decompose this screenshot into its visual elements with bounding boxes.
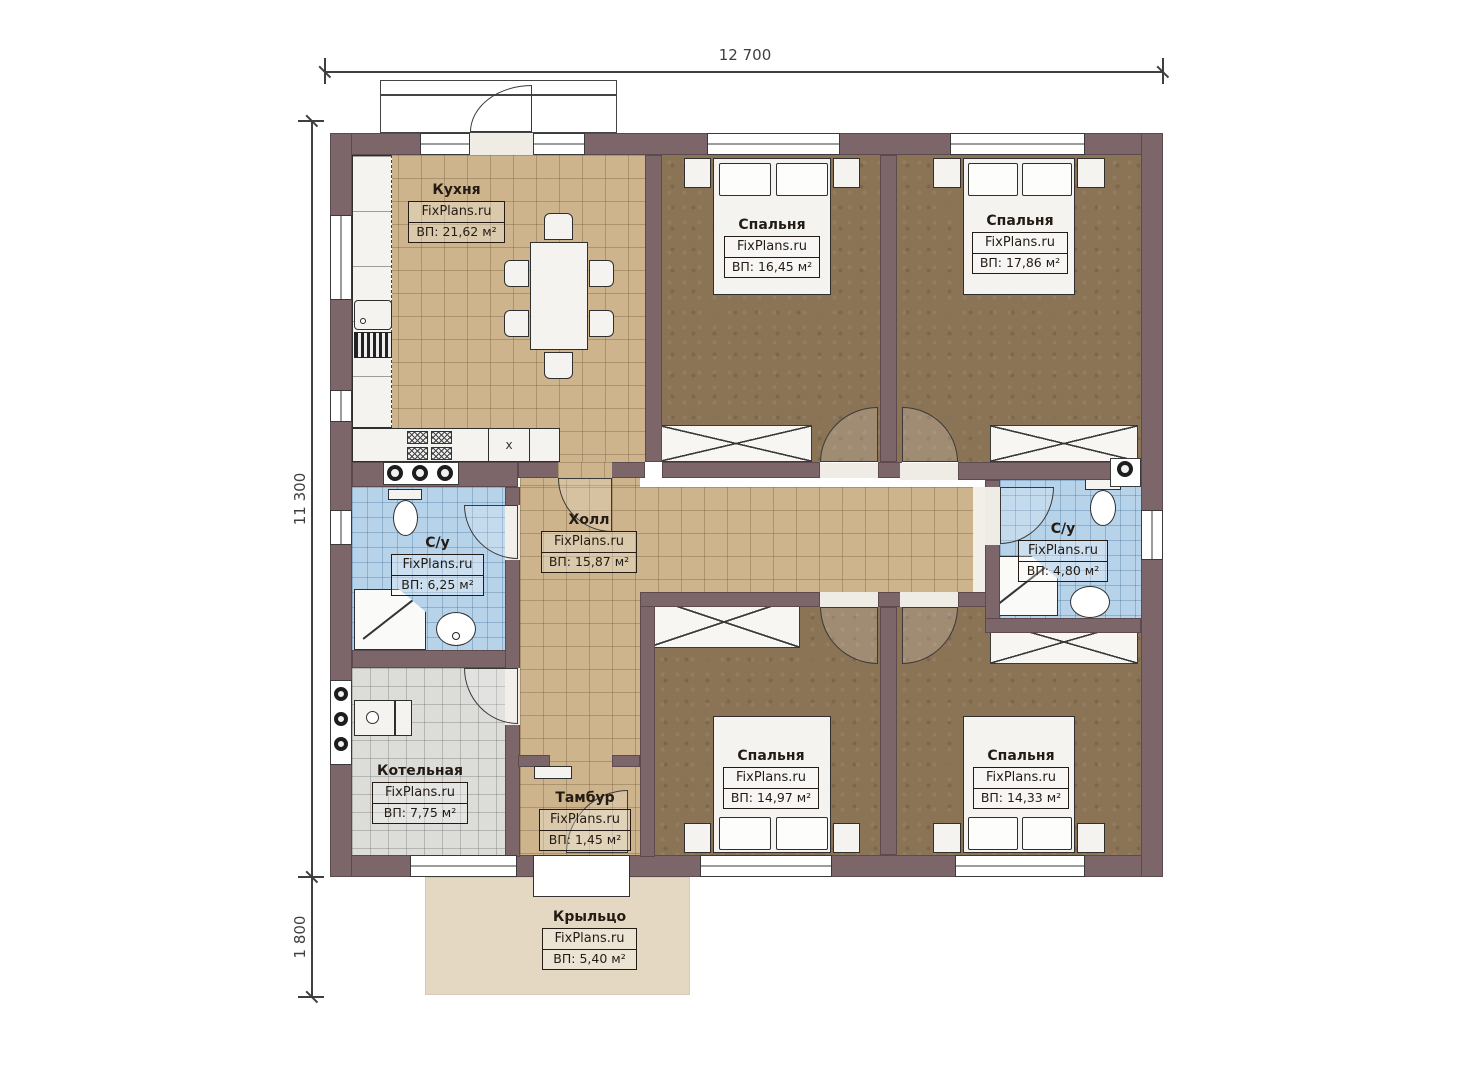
wall-right: [1141, 133, 1163, 877]
bedroom1-label: Спальня FixPlans.ru ВП: 16,45 м²: [724, 218, 820, 278]
dining-table: [530, 242, 588, 350]
wall-hall-bedroom3-top: [640, 592, 820, 607]
room-info-box: FixPlans.ru ВП: 1,45 м²: [539, 809, 631, 850]
kitchen-label: Кухня FixPlans.ru ВП: 21,62 м²: [408, 183, 505, 243]
watermark-text: FixPlans.ru: [409, 202, 504, 223]
room-area: ВП: 17,86 м²: [973, 254, 1067, 273]
room-name: С/у: [1018, 522, 1108, 537]
nightstand: [833, 823, 860, 853]
vestibule-door-leaf: [534, 766, 572, 779]
window-bedroom4: [955, 855, 1085, 877]
room-info-box: FixPlans.ru ВП: 14,33 м²: [973, 767, 1069, 808]
pillow: [776, 817, 828, 850]
doorway-bedroom2: [900, 463, 958, 480]
boiler-label: Котельная FixPlans.ru ВП: 7,75 м²: [372, 764, 468, 824]
window-bath2: [1141, 510, 1163, 560]
nightstand: [1077, 158, 1105, 188]
room-area: ВП: 14,33 м²: [974, 789, 1068, 808]
boiler-unit: [354, 700, 412, 736]
room-area: ВП: 6,25 м²: [392, 576, 483, 595]
vent-pipe-icon: [334, 737, 348, 751]
doorway-bedroom3: [820, 592, 878, 607]
room-name: Котельная: [372, 764, 468, 779]
dining-chair: [589, 260, 614, 287]
watermark-text: FixPlans.ru: [373, 783, 467, 804]
doorway-bath2: [985, 487, 1000, 545]
room-area: ВП: 21,62 м²: [409, 223, 504, 242]
kitchen-counter-left: [352, 155, 392, 428]
front-door-landing: [533, 855, 630, 897]
room-info-box: FixPlans.ru ВП: 7,75 м²: [372, 782, 468, 823]
room-info-box: FixPlans.ru ВП: 5,40 м²: [542, 928, 637, 969]
kitchen-sink-tap: [360, 318, 366, 324]
watermark-text: FixPlans.ru: [973, 233, 1067, 254]
room-area: ВП: 7,75 м²: [373, 804, 467, 823]
wall-vestibule-stub-right: [612, 755, 640, 767]
dining-chair: [589, 310, 614, 337]
wardrobe: [660, 425, 812, 462]
wall-bath1-boiler: [352, 650, 518, 668]
window-kitchen-top-1: [420, 133, 470, 155]
watermark-text: FixPlans.ru: [543, 929, 636, 950]
dimension-porch-label: 1 800: [291, 899, 309, 975]
bedroom3-label: Спальня FixPlans.ru ВП: 14,97 м²: [723, 749, 819, 809]
bedroom4-label: Спальня FixPlans.ru ВП: 14,33 м²: [973, 749, 1069, 809]
toilet-bowl-icon: [1090, 490, 1116, 526]
vent-pipe-icon: [334, 712, 348, 726]
room-name: Спальня: [972, 214, 1068, 229]
room-area: ВП: 16,45 м²: [725, 258, 819, 277]
pillow: [719, 163, 771, 196]
room-info-box: FixPlans.ru ВП: 14,97 м²: [723, 767, 819, 808]
nightstand: [1077, 823, 1105, 853]
kitchen-sink-icon: [354, 300, 392, 330]
dining-chair: [504, 260, 529, 287]
room-info-box: FixPlans.ru ВП: 17,86 м²: [972, 232, 1068, 273]
cooktop-ring-icon: [387, 465, 403, 481]
wall-bedroom1-bedroom2: [880, 155, 897, 462]
dimension-line-porch: [311, 877, 313, 997]
pillow: [776, 163, 828, 196]
room-name: Крыльцо: [542, 910, 637, 925]
room-info-box: FixPlans.ru ВП: 16,45 м²: [724, 236, 820, 277]
washbasin-icon: [1070, 586, 1110, 618]
bedroom2-label: Спальня FixPlans.ru ВП: 17,86 м²: [972, 214, 1068, 274]
pillow: [1022, 163, 1072, 196]
basin-drain: [452, 632, 460, 640]
cooktop-ring-icon: [412, 465, 428, 481]
window-bedroom1: [707, 133, 840, 155]
doorway-bedroom4: [900, 592, 958, 607]
window-kitchen-left-2: [330, 390, 352, 422]
washbasin-icon: [436, 612, 476, 646]
doorway-terrace: [470, 133, 533, 155]
watermark-text: FixPlans.ru: [540, 810, 630, 831]
dining-chair: [504, 310, 529, 337]
window-bath1: [330, 510, 352, 545]
window-boiler: [410, 855, 517, 877]
room-name: Спальня: [723, 749, 819, 764]
nightstand: [684, 823, 711, 853]
stove-burner-icon: [431, 447, 452, 460]
nightstand: [933, 823, 961, 853]
room-info-box: FixPlans.ru ВП: 6,25 м²: [391, 554, 484, 595]
stove-burner-icon: [431, 431, 452, 444]
wall-bath2-bottom: [985, 618, 1141, 633]
watermark-text: FixPlans.ru: [974, 768, 1068, 789]
toilet-tank-icon: [388, 489, 422, 500]
window-kitchen-left-1: [330, 215, 352, 300]
dimension-line-width: [325, 71, 1163, 73]
window-bedroom2: [950, 133, 1085, 155]
watermark-text: FixPlans.ru: [1019, 541, 1107, 562]
stove-burner-icon: [407, 447, 428, 460]
doorway-bedroom1: [820, 463, 878, 478]
wall-hall-bedroom3: [640, 592, 655, 857]
nightstand: [833, 158, 860, 188]
boiler-dial-icon: [366, 711, 379, 724]
watermark-text: FixPlans.ru: [392, 555, 483, 576]
window-kitchen-top-2: [533, 133, 585, 155]
dimension-height-label: 11 300: [291, 454, 309, 544]
watermark-text: FixPlans.ru: [542, 532, 636, 553]
nightstand: [684, 158, 711, 188]
room-name: Спальня: [973, 749, 1069, 764]
pillow: [719, 817, 771, 850]
floor-plan: x: [0, 0, 1473, 1080]
dish-rack-icon: [354, 332, 392, 358]
room-area: ВП: 4,80 м²: [1019, 562, 1107, 581]
stove-burner-icon: [407, 431, 428, 444]
pillow: [968, 817, 1018, 850]
porch-label: Крыльцо FixPlans.ru ВП: 5,40 м²: [542, 910, 637, 970]
hall-label: Холл FixPlans.ru ВП: 15,87 м²: [541, 513, 637, 573]
wall-hall-bedroom1: [662, 462, 820, 478]
boiler-flue-icon: [1117, 461, 1133, 477]
room-info-box: FixPlans.ru ВП: 4,80 м²: [1018, 540, 1108, 581]
room-name: Тамбур: [539, 791, 631, 806]
pillow: [968, 163, 1018, 196]
toilet-bowl-icon: [393, 500, 418, 536]
vent-pipe-icon: [334, 687, 348, 701]
bath1-label: С/у FixPlans.ru ВП: 6,25 м²: [391, 536, 484, 596]
dimension-width-label: 12 700: [700, 46, 790, 64]
room-area: ВП: 15,87 м²: [542, 553, 636, 572]
kitchen-extract-label: x: [505, 438, 512, 452]
doorway-kitchen-hall: [558, 462, 612, 478]
nightstand: [933, 158, 961, 188]
window-bedroom3: [700, 855, 832, 877]
room-area: ВП: 5,40 м²: [543, 950, 636, 969]
vestibule-label: Тамбур FixPlans.ru ВП: 1,45 м²: [539, 791, 631, 851]
wall-hall-stub-bottom: [878, 592, 902, 607]
bath2-label: С/у FixPlans.ru ВП: 4,80 м²: [1018, 522, 1108, 582]
room-name: Кухня: [408, 183, 505, 198]
room-name: Холл: [541, 513, 637, 528]
room-info-box: FixPlans.ru ВП: 21,62 м²: [408, 201, 505, 242]
watermark-text: FixPlans.ru: [725, 237, 819, 258]
wall-hall-stub-top: [878, 462, 902, 478]
cooktop-ring-icon: [437, 465, 453, 481]
room-info-box: FixPlans.ru ВП: 15,87 м²: [541, 531, 637, 572]
room-area: ВП: 1,45 м²: [540, 831, 630, 850]
watermark-text: FixPlans.ru: [724, 768, 818, 789]
pillow: [1022, 817, 1072, 850]
room-name: Спальня: [724, 218, 820, 233]
wardrobe: [990, 425, 1138, 462]
wall-bedroom3-bedroom4: [880, 607, 897, 855]
dimension-line-height: [311, 120, 313, 877]
wall-kitchen-bedroom1: [645, 155, 662, 462]
boiler-divider: [394, 701, 396, 735]
room-area: ВП: 14,97 м²: [724, 789, 818, 808]
dining-chair: [544, 352, 573, 379]
room-name: С/у: [391, 536, 484, 551]
dining-chair: [544, 213, 573, 240]
kitchen-extract-box: x: [488, 428, 530, 462]
